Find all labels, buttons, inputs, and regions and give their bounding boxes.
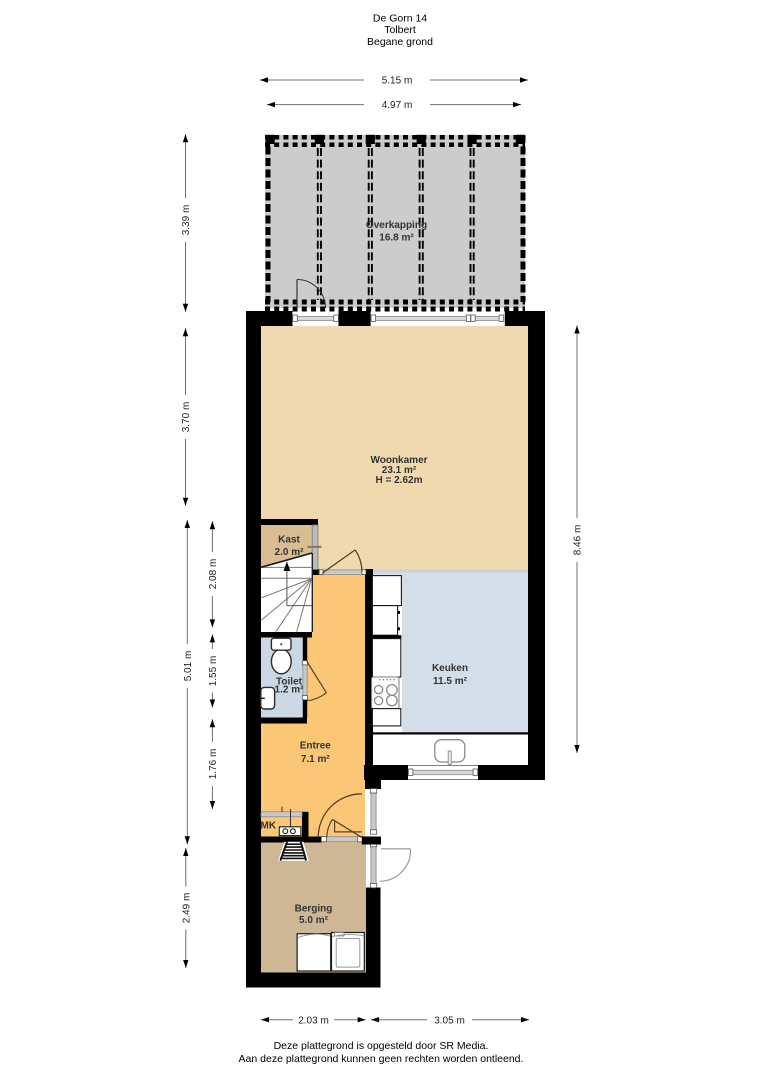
svg-text:4.97 m: 4.97 m — [382, 100, 413, 111]
svg-text:3.70 m: 3.70 m — [181, 402, 192, 433]
svg-text:H = 2.62m: H = 2.62m — [376, 475, 423, 486]
svg-text:Keuken: Keuken — [432, 663, 468, 674]
svg-text:1.76 m: 1.76 m — [208, 749, 219, 780]
svg-text:2.0 m²: 2.0 m² — [275, 547, 305, 558]
svg-text:1.2 m²: 1.2 m² — [275, 685, 305, 696]
svg-text:3.05 m: 3.05 m — [434, 1015, 465, 1026]
svg-text:Tolbert: Tolbert — [384, 24, 416, 36]
svg-text:Kast: Kast — [278, 535, 300, 546]
svg-text:5.0 m²: 5.0 m² — [299, 915, 329, 926]
svg-text:5.01 m: 5.01 m — [183, 651, 194, 682]
svg-text:1.55 m: 1.55 m — [208, 656, 219, 687]
svg-text:Deze plattegrond is opgesteld: Deze plattegrond is opgesteld door SR Me… — [274, 1040, 489, 1052]
svg-text:Begane grond: Begane grond — [367, 36, 433, 48]
svg-text:7.1 m²: 7.1 m² — [301, 754, 331, 765]
svg-text:3.39 m: 3.39 m — [181, 205, 192, 236]
svg-text:De Gorn 14: De Gorn 14 — [373, 12, 427, 24]
svg-text:16.8 m²: 16.8 m² — [379, 232, 414, 243]
svg-text:Overkapping: Overkapping — [366, 220, 427, 231]
svg-text:Aan deze plattegrond kunnen ge: Aan deze plattegrond kunnen geen rechten… — [239, 1053, 524, 1065]
svg-text:MK: MK — [261, 821, 277, 832]
svg-text:2.08 m: 2.08 m — [208, 559, 219, 590]
svg-text:8.46 m: 8.46 m — [573, 525, 584, 556]
svg-text:Entree: Entree — [300, 741, 332, 752]
svg-text:2.03 m: 2.03 m — [298, 1015, 329, 1026]
svg-text:Berging: Berging — [295, 903, 333, 914]
svg-text:11.5 m²: 11.5 m² — [433, 676, 468, 687]
svg-text:5.15 m: 5.15 m — [382, 76, 413, 87]
svg-text:2.49 m: 2.49 m — [181, 893, 192, 924]
